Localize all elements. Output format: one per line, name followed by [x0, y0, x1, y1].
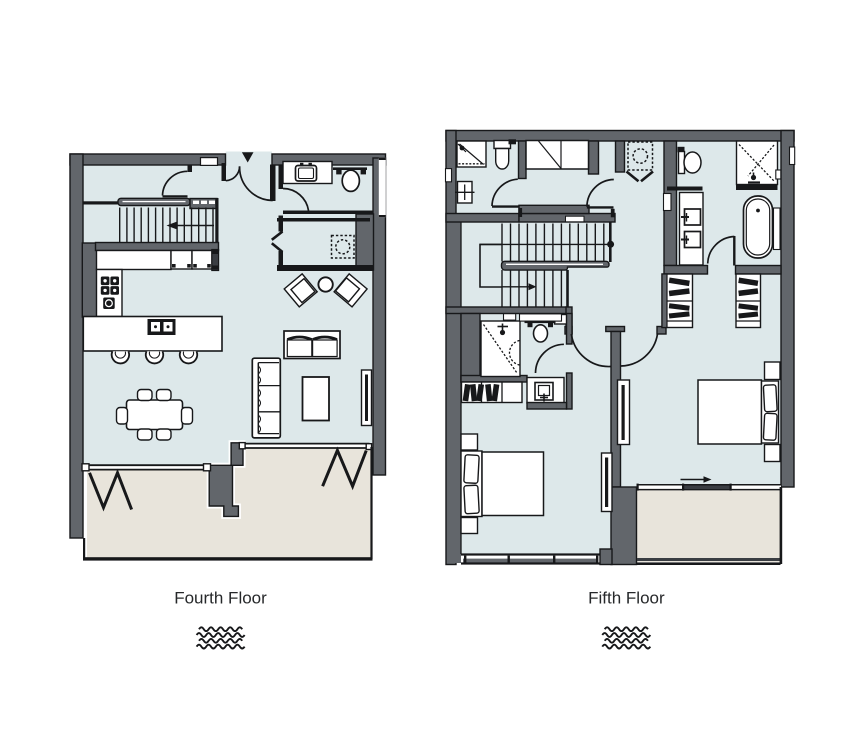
svg-text:Fourth Floor: Fourth Floor: [174, 589, 267, 608]
svg-text:Fifth Floor: Fifth Floor: [588, 589, 665, 608]
